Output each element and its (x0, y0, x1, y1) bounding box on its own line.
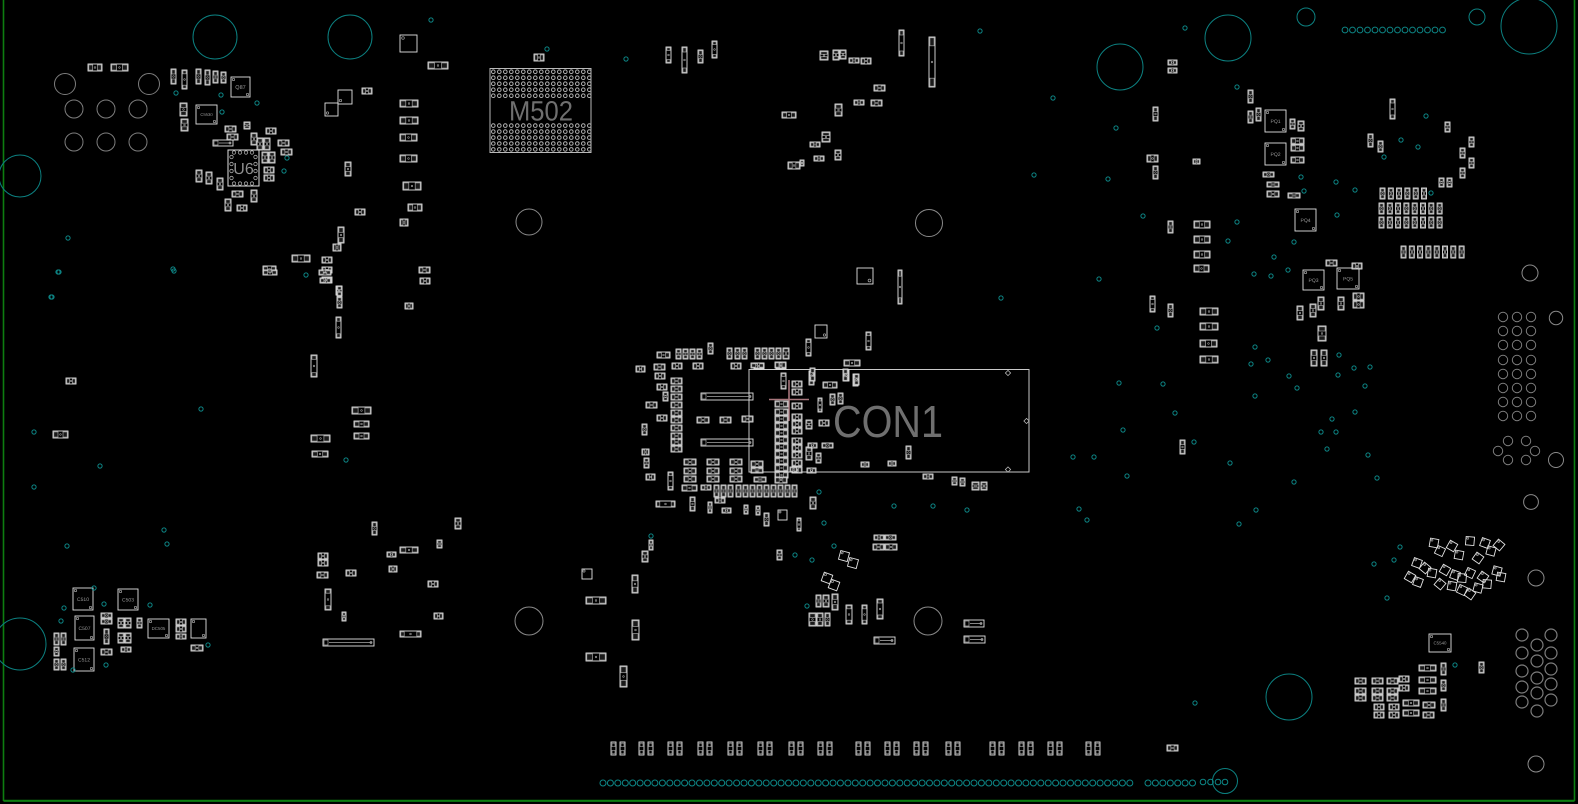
svg-text:C503: C503 (122, 597, 134, 603)
svg-text:PQ3: PQ3 (1308, 278, 1318, 284)
svg-text:DC505: DC505 (152, 626, 166, 631)
svg-text:C512: C512 (78, 657, 90, 663)
svg-text:U6: U6 (233, 161, 254, 178)
svg-text:PQ1: PQ1 (1270, 119, 1280, 125)
svg-text:PQ5: PQ5 (1343, 276, 1353, 282)
svg-text:C510: C510 (77, 597, 89, 603)
svg-text:C5530: C5530 (200, 112, 213, 117)
svg-text:M502: M502 (509, 96, 573, 127)
svg-text:PQ4: PQ4 (1300, 218, 1310, 224)
svg-text:C5540: C5540 (1434, 641, 1447, 646)
svg-text:Q87: Q87 (235, 85, 245, 91)
svg-text:CON1: CON1 (833, 396, 943, 447)
svg-text:C507: C507 (79, 626, 91, 632)
svg-text:PQ2: PQ2 (1270, 152, 1280, 158)
